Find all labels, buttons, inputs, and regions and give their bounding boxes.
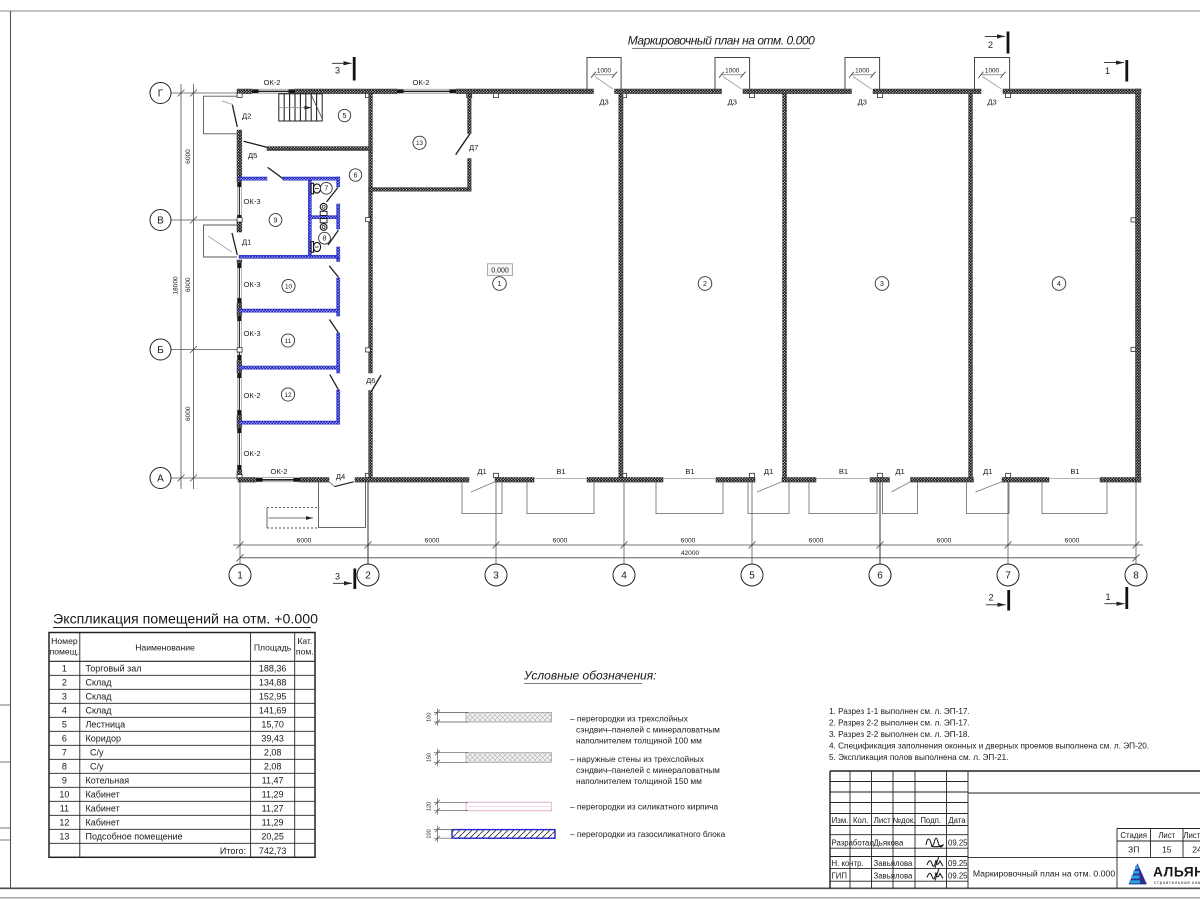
svg-text:3: 3 — [493, 571, 499, 582]
svg-text:6: 6 — [62, 734, 67, 744]
svg-text:6000: 6000 — [809, 538, 824, 545]
svg-text:Д1: Д1 — [895, 467, 904, 476]
svg-text:1000: 1000 — [985, 68, 1000, 75]
svg-text:Кабинет: Кабинет — [86, 818, 120, 828]
svg-text:Экспликация помещений на отм.: Экспликация помещений на отм. +0.000 — [53, 612, 318, 628]
svg-text:7: 7 — [324, 186, 328, 193]
svg-text:4. Спецификация заполнения око: 4. Спецификация заполнения оконных и две… — [829, 741, 1149, 750]
svg-text:Кат.: Кат. — [297, 636, 312, 646]
svg-text:13: 13 — [416, 140, 424, 147]
svg-text:11,29: 11,29 — [262, 790, 284, 800]
svg-text:5: 5 — [749, 571, 755, 582]
svg-text:10: 10 — [59, 790, 69, 800]
svg-text:Подп.: Подп. — [920, 816, 941, 825]
svg-text:Д7: Д7 — [469, 143, 478, 152]
svg-text:09.25: 09.25 — [948, 859, 968, 868]
svg-text:помещ.: помещ. — [50, 647, 80, 657]
svg-text:1: 1 — [62, 664, 67, 674]
svg-text:15,70: 15,70 — [261, 720, 284, 730]
svg-text:3: 3 — [880, 281, 884, 288]
svg-text:Склад: Склад — [86, 678, 113, 688]
svg-text:ОК-2: ОК-2 — [263, 78, 280, 87]
svg-text:Склад: Склад — [86, 692, 113, 702]
svg-text:24: 24 — [1192, 845, 1200, 855]
svg-text:3: 3 — [62, 692, 67, 702]
svg-text:Г: Г — [158, 89, 164, 100]
svg-text:Изм.: Изм. — [832, 816, 849, 825]
svg-text:Площадь: Площадь — [254, 643, 292, 653]
svg-text:2: 2 — [988, 40, 993, 50]
svg-text:Листов: Листов — [1183, 831, 1200, 840]
svg-text:15: 15 — [1162, 845, 1172, 855]
svg-text:3. Разрез 2-2 выполнен см. л.: 3. Разрез 2-2 выполнен см. л. ЭП-18. — [829, 730, 970, 739]
svg-text:Лестница: Лестница — [86, 720, 126, 730]
svg-text:12: 12 — [59, 818, 69, 828]
svg-text:Итого:: Итого: — [220, 846, 246, 856]
svg-text:ОК-2: ОК-2 — [412, 78, 429, 87]
svg-text:9: 9 — [274, 217, 278, 224]
svg-text:5: 5 — [62, 720, 67, 730]
svg-text:2: 2 — [703, 281, 707, 288]
svg-text:6: 6 — [354, 172, 358, 179]
svg-text:8: 8 — [323, 236, 327, 243]
svg-text:7: 7 — [1005, 571, 1011, 582]
svg-text:Кабинет: Кабинет — [86, 804, 120, 814]
svg-text:6: 6 — [877, 571, 883, 582]
svg-text:наполнителем толщиной 150 мм: наполнителем толщиной 150 мм — [576, 776, 702, 786]
svg-text:1000: 1000 — [725, 68, 740, 75]
svg-text:ОК-2: ОК-2 — [244, 391, 261, 400]
svg-text:Н. контр.: Н. контр. — [832, 859, 864, 868]
svg-text:2,08: 2,08 — [264, 748, 282, 758]
svg-text:Коридор: Коридор — [86, 734, 122, 744]
svg-text:Дата: Дата — [948, 816, 966, 825]
svg-text:1: 1 — [1105, 66, 1110, 76]
svg-text:2: 2 — [62, 678, 67, 688]
svg-text:ОК-3: ОК-3 — [244, 329, 261, 338]
svg-text:С/у: С/у — [90, 762, 104, 772]
svg-text:42000: 42000 — [681, 550, 700, 557]
svg-text:ГИП: ГИП — [832, 872, 847, 881]
svg-text:11: 11 — [60, 804, 69, 814]
svg-text:1: 1 — [237, 571, 243, 582]
svg-text:10: 10 — [285, 283, 293, 290]
svg-text:152,95: 152,95 — [259, 692, 287, 702]
svg-text:ОК-3: ОК-3 — [244, 197, 261, 206]
svg-text:Д2: Д2 — [242, 112, 251, 121]
svg-text:8: 8 — [1133, 571, 1139, 582]
svg-text:1: 1 — [498, 281, 502, 288]
svg-text:Д4: Д4 — [336, 472, 345, 481]
svg-text:4: 4 — [621, 571, 627, 582]
svg-text:Условные обозначения:: Условные обозначения: — [523, 669, 656, 683]
svg-text:– перегородки из силикатного к: – перегородки из силикатного кирпича — [570, 802, 719, 812]
svg-text:Подсобное помещение: Подсобное помещение — [86, 832, 183, 842]
svg-text:188,36: 188,36 — [259, 664, 287, 674]
svg-text:Лист: Лист — [1158, 831, 1175, 840]
svg-text:7: 7 — [62, 748, 67, 758]
svg-text:Маркировочный план на отм. 0.0: Маркировочный план на отм. 0.000 — [628, 34, 815, 48]
svg-text:ОК-3: ОК-3 — [244, 280, 261, 289]
svg-text:3: 3 — [335, 66, 340, 76]
svg-text:строительная компания: строительная компания — [1154, 880, 1200, 885]
svg-text:6000: 6000 — [185, 149, 192, 164]
svg-text:742,73: 742,73 — [259, 846, 287, 856]
svg-text:3: 3 — [335, 572, 340, 582]
svg-text:0.000: 0.000 — [491, 267, 509, 274]
svg-text:6000: 6000 — [297, 538, 312, 545]
svg-text:11,27: 11,27 — [262, 804, 284, 814]
svg-text:ЗП: ЗП — [1128, 845, 1139, 855]
svg-text:5: 5 — [343, 113, 347, 120]
svg-text:Завьялова: Завьялова — [874, 872, 913, 881]
svg-text:1000: 1000 — [597, 68, 612, 75]
svg-text:1000: 1000 — [855, 68, 870, 75]
svg-text:Склад: Склад — [86, 706, 113, 716]
svg-text:Торговый зал: Торговый зал — [86, 664, 142, 674]
svg-text:Д1: Д1 — [242, 238, 251, 247]
svg-text:наполнителем толщиной 100 мм: наполнителем толщиной 100 мм — [576, 735, 702, 745]
svg-text:Д3: Д3 — [858, 98, 867, 107]
svg-text:6000: 6000 — [1065, 538, 1080, 545]
svg-text:2,08: 2,08 — [264, 762, 282, 772]
svg-text:120: 120 — [427, 802, 433, 811]
svg-text:18000: 18000 — [173, 276, 180, 295]
svg-text:Завьялова: Завьялова — [874, 859, 913, 868]
svg-text:12: 12 — [284, 392, 292, 399]
svg-text:150: 150 — [427, 753, 433, 762]
svg-text:6000: 6000 — [553, 538, 568, 545]
svg-text:100: 100 — [427, 829, 433, 838]
svg-text:Маркировочный план на отм. 0.0: Маркировочный план на отм. 0.000 — [973, 869, 1115, 879]
svg-text:Д1: Д1 — [764, 467, 773, 476]
svg-text:100: 100 — [427, 713, 433, 722]
svg-text:2. Разрез 2-2 выполнен см. л.: 2. Разрез 2-2 выполнен см. л. ЭП-17. — [829, 718, 970, 727]
svg-text:09.25: 09.25 — [948, 872, 968, 881]
svg-text:ОК-2: ОК-2 — [244, 449, 261, 458]
svg-text:11,47: 11,47 — [262, 776, 284, 786]
svg-text:20,25: 20,25 — [261, 832, 284, 842]
svg-text:Д6: Д6 — [366, 376, 375, 385]
svg-text:Б: Б — [157, 345, 164, 356]
svg-text:А: А — [157, 474, 164, 485]
svg-text:39,43: 39,43 — [261, 734, 284, 744]
svg-text:– перегородки из газосиликатно: – перегородки из газосиликатного блока — [570, 829, 726, 839]
svg-text:6000: 6000 — [937, 538, 952, 545]
svg-text:9: 9 — [62, 776, 67, 786]
svg-text:8: 8 — [62, 762, 67, 772]
svg-text:АЛЬЯНС: АЛЬЯНС — [1153, 865, 1200, 880]
svg-text:Д3: Д3 — [728, 98, 737, 107]
svg-text:Кол.: Кол. — [853, 816, 868, 825]
svg-text:4: 4 — [62, 706, 67, 716]
svg-text:Номер: Номер — [51, 636, 78, 646]
svg-text:пом.: пом. — [296, 647, 314, 657]
svg-text:Котельная: Котельная — [86, 776, 130, 786]
svg-text:– наружные стены из трехслойны: – наружные стены из трехслойных — [570, 754, 705, 764]
svg-text:134,88: 134,88 — [259, 678, 287, 688]
svg-text:Дьякова: Дьякова — [874, 839, 904, 848]
svg-text:В1: В1 — [556, 467, 565, 476]
svg-text:11,29: 11,29 — [262, 818, 284, 828]
svg-text:сэндвич–панелей с минераловатн: сэндвич–панелей с минераловатным — [576, 765, 720, 775]
svg-text:№док.: №док. — [893, 816, 916, 825]
svg-text:Лист: Лист — [874, 816, 891, 825]
svg-text:Д3: Д3 — [987, 98, 996, 107]
svg-text:Д1: Д1 — [983, 467, 992, 476]
svg-text:В1: В1 — [685, 467, 694, 476]
svg-text:С/у: С/у — [90, 748, 104, 758]
svg-text:141,69: 141,69 — [259, 706, 287, 716]
svg-text:2: 2 — [988, 593, 993, 603]
svg-text:Д3: Д3 — [599, 98, 608, 107]
svg-text:В1: В1 — [839, 467, 848, 476]
svg-text:Стадия: Стадия — [1120, 831, 1147, 840]
svg-text:Д1: Д1 — [477, 467, 486, 476]
svg-text:2: 2 — [365, 571, 371, 582]
svg-text:Наименование: Наименование — [135, 643, 195, 653]
svg-text:13: 13 — [59, 832, 69, 842]
svg-text:6000: 6000 — [425, 538, 440, 545]
svg-text:В1: В1 — [1070, 467, 1079, 476]
svg-text:В: В — [157, 216, 164, 227]
svg-text:Кабинет: Кабинет — [86, 790, 120, 800]
svg-text:6000: 6000 — [185, 277, 192, 292]
svg-text:11: 11 — [285, 338, 292, 345]
svg-text:4: 4 — [1057, 281, 1061, 288]
svg-text:1. Разрез 1-1 выполнен см. л.: 1. Разрез 1-1 выполнен см. л. ЭП-17. — [829, 707, 970, 716]
svg-text:Разработал: Разработал — [832, 839, 875, 848]
svg-text:5. Экспликация полов выполнена: 5. Экспликация полов выполнена см. л. ЭП… — [829, 753, 1008, 762]
svg-text:1: 1 — [1105, 592, 1110, 602]
svg-text:Д5: Д5 — [248, 151, 257, 160]
svg-text:ОК-2: ОК-2 — [270, 467, 287, 476]
svg-text:– перегородки из трехслойных: – перегородки из трехслойных — [570, 714, 689, 724]
svg-text:6000: 6000 — [185, 406, 192, 421]
svg-text:сэндвич–панелей с минераловатн: сэндвич–панелей с минераловатным — [576, 725, 720, 735]
svg-text:09.25: 09.25 — [948, 839, 968, 848]
svg-text:6000: 6000 — [681, 538, 696, 545]
